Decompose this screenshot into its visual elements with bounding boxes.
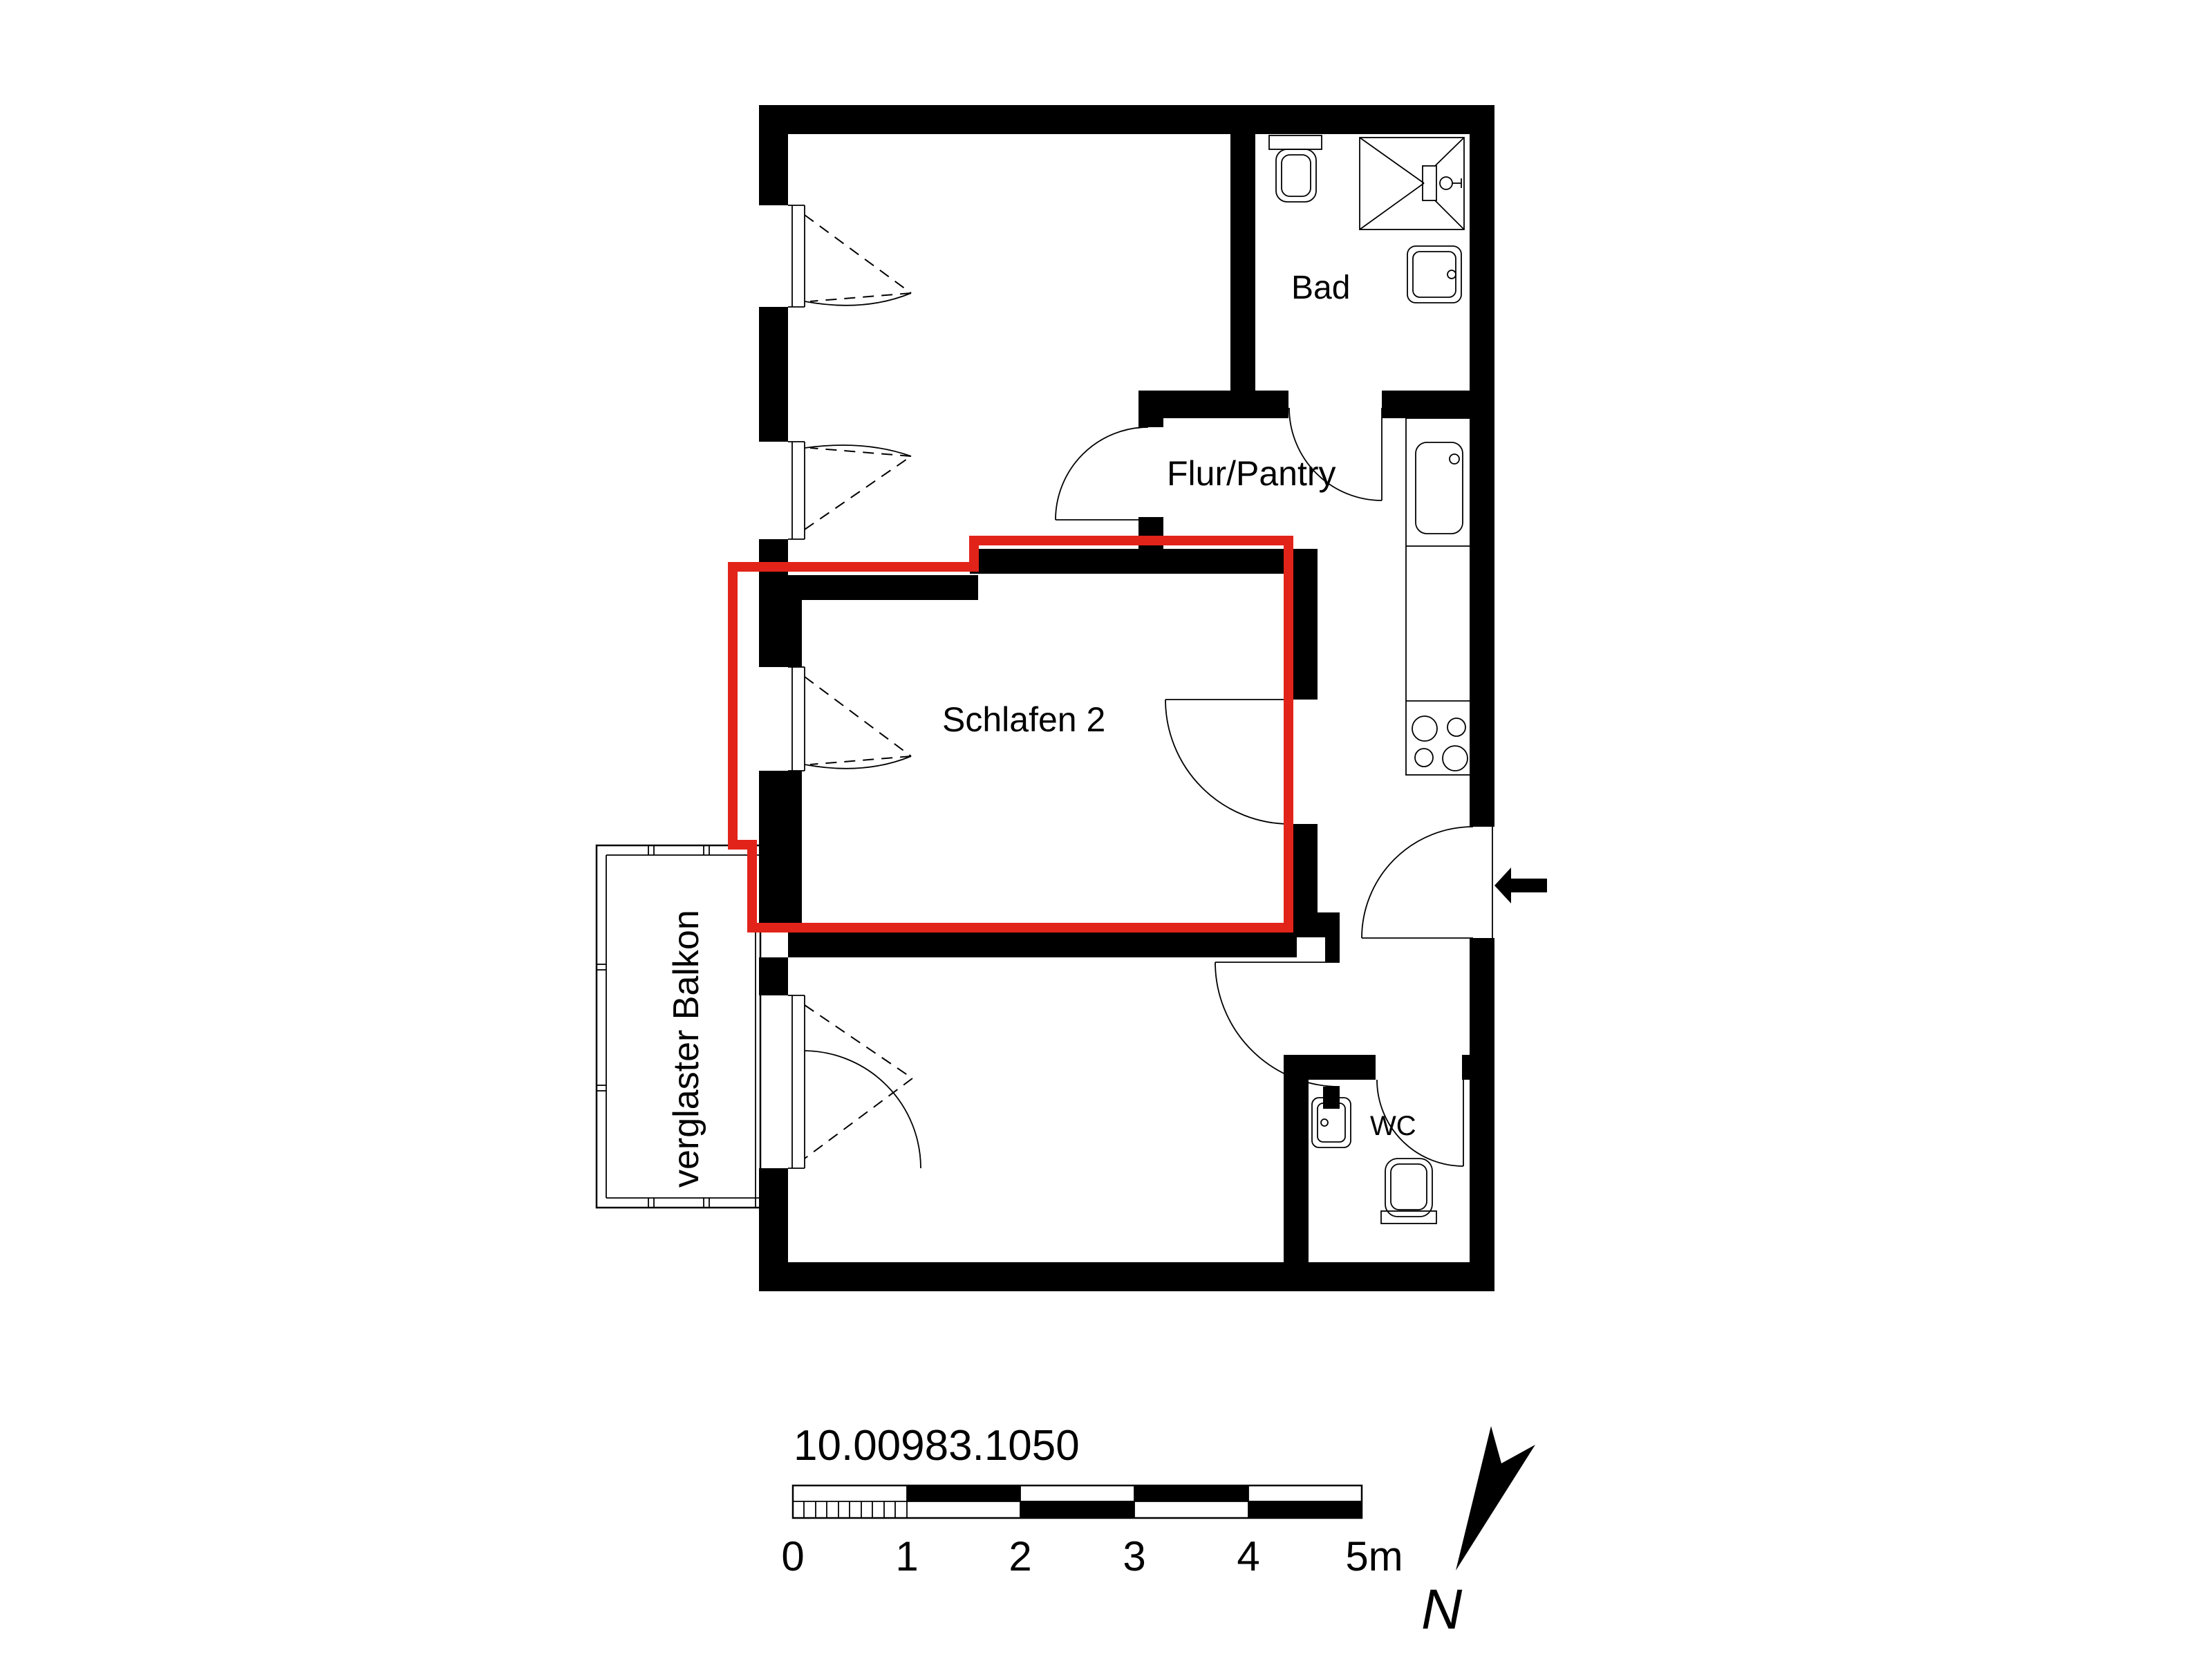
- door-icon: [1165, 700, 1290, 824]
- window-icon: [788, 205, 911, 307]
- north-arrow: N: [1421, 1426, 1535, 1641]
- svg-text:0: 0: [781, 1533, 804, 1580]
- window-icon: [788, 667, 911, 771]
- kitchen-sink-icon: [1416, 442, 1463, 534]
- door-icon: [1056, 427, 1148, 520]
- north-needle-icon: [1456, 1426, 1535, 1571]
- entry-arrow-icon: [1494, 868, 1547, 903]
- window-symbols: [788, 205, 921, 1168]
- svg-text:5m: 5m: [1345, 1533, 1403, 1580]
- scale-bar: 0 1 2 3 4 5m: [781, 1485, 1403, 1580]
- floor-plan-svg: Bad Flur/Pantry Schlafen 2 WC verglaster…: [0, 0, 2212, 1659]
- room-label-balkon: verglaster Balkon: [666, 910, 706, 1188]
- toilet-icon: [1269, 135, 1322, 202]
- kitchen-counter: [1406, 418, 1472, 775]
- entrance-door-icon: [1362, 827, 1492, 938]
- scale-bar-labels: 0 1 2 3 4 5m: [781, 1533, 1403, 1580]
- wc-toilet-icon: [1381, 1159, 1436, 1224]
- balcony-door-icon: [788, 995, 921, 1168]
- room-label-flur: Flur/Pantry: [1167, 454, 1336, 493]
- svg-text:3: 3: [1123, 1533, 1145, 1580]
- page: Bad Flur/Pantry Schlafen 2 WC verglaster…: [0, 0, 2212, 1659]
- window-icon: [788, 442, 911, 539]
- room-label-schlafen2: Schlafen 2: [942, 700, 1105, 739]
- drawing-number: 10.00983.1050: [794, 1422, 1080, 1470]
- svg-text:1: 1: [895, 1533, 918, 1580]
- svg-text:2: 2: [1009, 1533, 1031, 1580]
- svg-text:4: 4: [1237, 1533, 1259, 1580]
- room-label-bad: Bad: [1291, 270, 1350, 306]
- room-label-wc: WC: [1370, 1111, 1416, 1141]
- sink-icon: [1407, 246, 1461, 303]
- door-swings: [1056, 408, 1492, 1166]
- north-label: N: [1421, 1578, 1463, 1641]
- stove-icon: [1412, 716, 1468, 771]
- shower-icon: [1360, 138, 1464, 229]
